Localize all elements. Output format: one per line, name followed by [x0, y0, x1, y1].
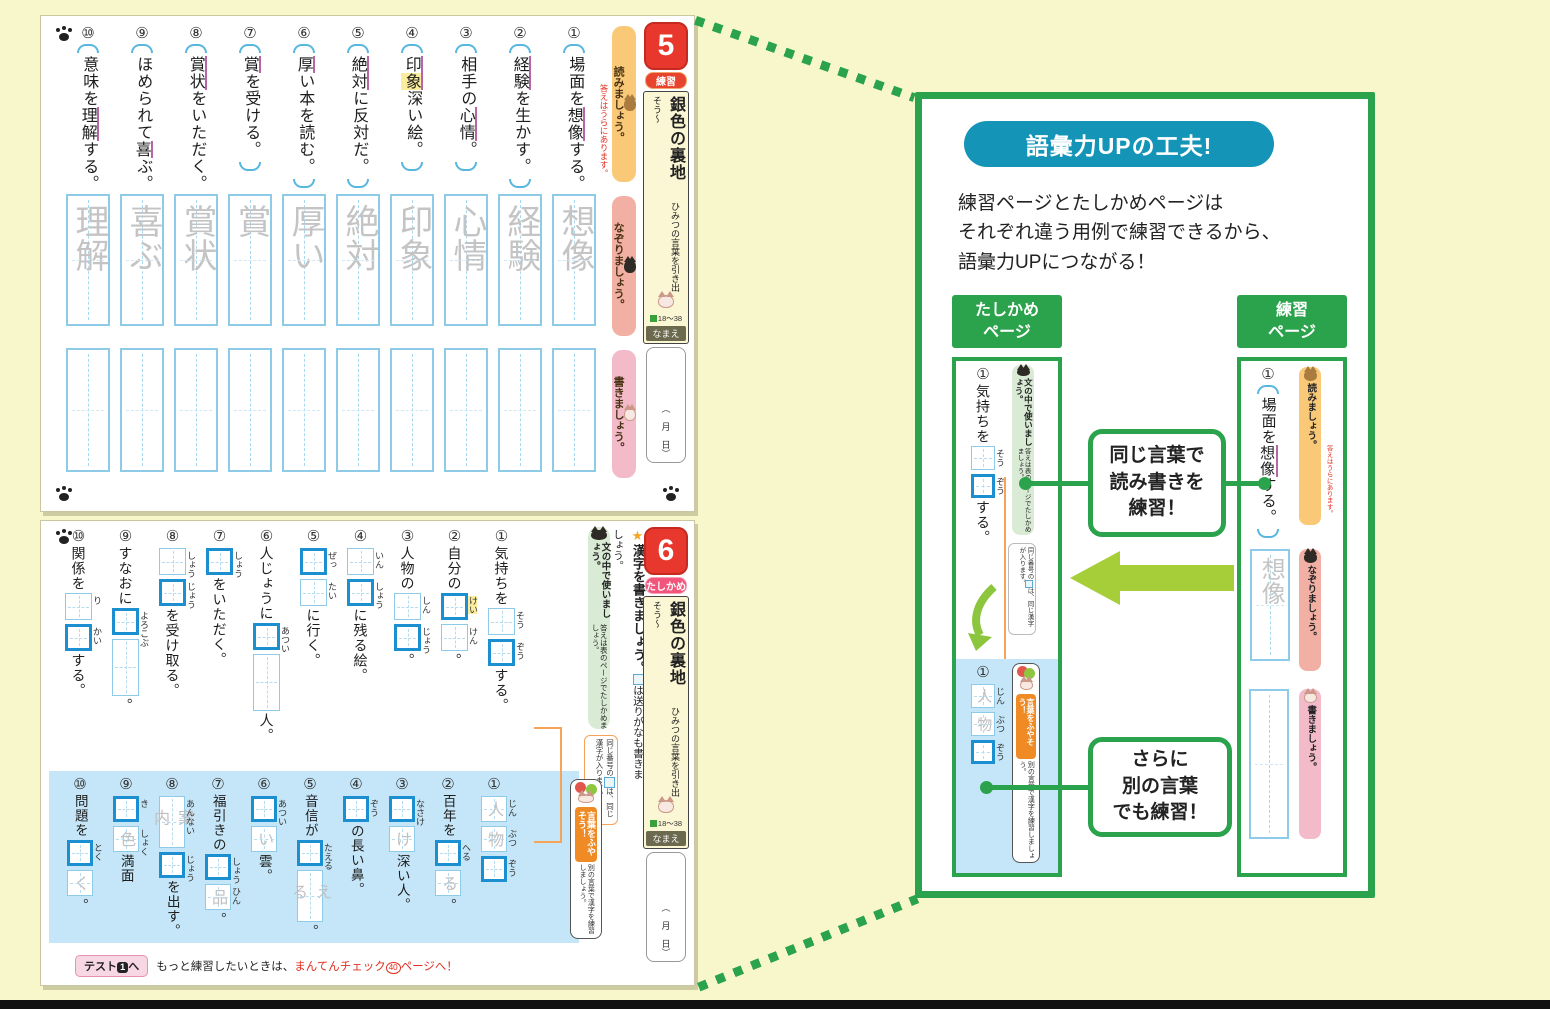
box-wrap: じょう	[394, 624, 421, 651]
write-column	[277, 348, 331, 472]
writing-box[interactable]	[441, 593, 468, 620]
connector-dot	[980, 781, 993, 794]
trace-strip: なぞりましょう。	[612, 196, 636, 336]
writing-box[interactable]	[394, 624, 421, 651]
furigana: へる	[461, 843, 470, 861]
write-box-large[interactable]	[444, 348, 488, 472]
arc-mark	[455, 162, 477, 171]
sentence-text: 厚	[293, 56, 314, 73]
trace-column: 印象	[385, 194, 439, 326]
box-wrap: かい	[65, 624, 92, 651]
p5-trace-band: 想像経験心情印象絶対厚い賞賞状喜ぶ理解	[53, 194, 601, 326]
trace-box[interactable]: い	[251, 826, 277, 852]
p5-title-column: 5 練習 銀色の裏地 ひみつの言葉を引き出そう～ 18～38 なまえ （ 月 日…	[642, 22, 690, 463]
trace-box[interactable]: け	[389, 826, 415, 852]
name-field[interactable]: （ 月 日）	[646, 852, 686, 962]
vocab-strip: 言葉をふやそう！ 別の言葉で漢字を練習しましょう。	[570, 779, 602, 939]
trace-box-large[interactable]: 印象	[390, 194, 434, 326]
furigana: かい	[92, 627, 101, 645]
sentence-text: に行く。	[305, 608, 321, 668]
writing-box[interactable]	[347, 548, 374, 575]
big-arrow-body	[1118, 565, 1234, 591]
trace-box[interactable]: 案内	[159, 796, 185, 848]
p6-bottom-columns: ①人じん物ぶつぞう②百年をへるる。③なさけけ深い人。④ぞうの長い鼻。⑤音信がたえ…	[57, 777, 517, 938]
item-number: ②	[448, 529, 461, 544]
worksheet-column: ⑤ぜったいに行く。	[290, 529, 337, 743]
worksheet-column: ⑦賞を受ける。	[223, 26, 277, 205]
trace-box-large[interactable]: 賞	[228, 194, 272, 326]
write-column	[61, 348, 115, 472]
trace-characters: 心情	[443, 204, 489, 272]
box-wrap: そう	[971, 446, 995, 470]
writing-box[interactable]	[253, 654, 280, 711]
sentence-text: 気持ちを	[975, 384, 991, 444]
trace-characters: 印象	[389, 204, 435, 272]
furigana: ひん	[231, 887, 240, 905]
trace-box[interactable]: 色	[113, 826, 139, 852]
writing-box[interactable]	[65, 624, 92, 651]
p6-footer: テスト1へ もっと練習したいときは、 まんてんチェック40ページへ！	[75, 955, 458, 977]
mini-same-number-note: 同じ番号のは、同じ漢字が入ります。	[1008, 543, 1036, 635]
worksheet-column: ④ぞうの長い鼻。	[333, 777, 379, 938]
arc-mark	[509, 44, 531, 53]
furigana: じょう	[185, 855, 194, 882]
box-wrap: る	[435, 870, 461, 896]
item-number: ⑨	[119, 777, 132, 792]
write-box-large[interactable]	[498, 348, 542, 472]
trace-box[interactable]: 物	[481, 826, 507, 852]
worksheet-column: ⑥人じょうにあつい人。	[243, 529, 290, 743]
worksheet-column: ⑤絶対に反対だ。	[331, 26, 385, 205]
worksheet-column: ④印象深い絵。	[385, 26, 439, 205]
p6-top-columns: ①気持ちをそうぞうする。②自分のけいけん。③人物のしんじょう。④いんしょうに残る…	[55, 529, 525, 743]
furigana: しょう	[233, 551, 242, 578]
box-wrap: じょう	[159, 579, 186, 606]
sentence-text: 意味を	[79, 56, 97, 107]
box-wrap: ぜっ	[300, 548, 327, 575]
box-wrap	[112, 639, 139, 696]
sentence-text: 音信が	[302, 794, 318, 838]
page-number-badge: 5	[644, 22, 688, 70]
write-column	[439, 348, 493, 472]
trace-box-large[interactable]: 喜ぶ	[120, 194, 164, 326]
writing-box[interactable]	[206, 548, 233, 575]
box-wrap: ぞう	[343, 796, 369, 822]
writing-box[interactable]	[205, 854, 231, 880]
furigana: しょう	[374, 582, 383, 609]
box-wrap: 人じん	[481, 796, 507, 822]
sentence-text: をいただく。	[187, 90, 205, 192]
mini-write-strip: 書きましょう。	[1299, 689, 1321, 839]
same-word-connector-line	[534, 841, 562, 843]
furigana: ぞう	[995, 743, 1004, 761]
arc-mark	[1257, 529, 1279, 538]
worksheet-column: ⑩関係をりかいする。	[55, 529, 102, 743]
furigana: じょう	[186, 582, 195, 609]
writing-box[interactable]	[343, 796, 369, 822]
trace-characters: 賞状	[173, 204, 219, 272]
writing-box[interactable]	[65, 593, 92, 620]
date-field[interactable]: （ 月 日）	[660, 903, 673, 957]
sentence-text: 百年を	[440, 794, 456, 838]
writing-box[interactable]	[251, 796, 277, 822]
furigana: たえる	[323, 843, 332, 870]
worksheet-column: ⑩問題をとくく。	[57, 777, 103, 938]
item-number: ⑤	[351, 26, 364, 41]
use-in-sentence-strip: 文の中で使いましょう。 答えは表のページでたしかめましょう。	[588, 527, 610, 729]
writing-box[interactable]	[297, 840, 323, 866]
writing-box[interactable]	[159, 548, 186, 575]
writing-box[interactable]	[389, 796, 415, 822]
tashikame-mini-page: ①気持ちをそうぞうする。 文の中で使いましょう。 答えは表のページでたしかめまし…	[952, 357, 1062, 877]
arc-mark	[239, 44, 261, 53]
furigana: あつい	[280, 626, 289, 653]
worksheet-column: ⑧しょうじょうを受け取る。	[149, 529, 196, 743]
writing-box[interactable]	[112, 639, 139, 696]
vocab-badge: 言葉をふやそう！	[1016, 694, 1036, 760]
trace-box-large[interactable]: 想像	[1250, 549, 1290, 661]
write-box-large[interactable]	[120, 348, 164, 472]
big-arrow-icon	[1070, 551, 1120, 605]
white-cat-icon	[1304, 692, 1317, 703]
sentence-text: の長い鼻。	[348, 824, 364, 897]
trace-character: る	[436, 874, 460, 890]
cat-icon	[658, 800, 674, 813]
arc-mark	[401, 162, 423, 171]
trace-column: 絶対	[331, 194, 385, 326]
write-box-large[interactable]	[282, 348, 326, 472]
sentence-text: 福引きの	[210, 794, 226, 852]
sentence-text: 問題を	[72, 794, 88, 838]
item-number: ①	[487, 777, 500, 792]
dotted-connector-bottom	[697, 895, 919, 992]
arc-mark	[347, 179, 369, 188]
trace-characters: 絶対	[335, 204, 381, 272]
box-wrap: い	[251, 826, 277, 852]
box-wrap: あつい	[253, 623, 280, 650]
writing-box[interactable]	[488, 608, 515, 635]
furigana: じん	[507, 799, 516, 817]
sentence-text: に残る絵。	[352, 608, 368, 683]
furigana: ぞう	[995, 477, 1004, 495]
trace-box[interactable]: 品	[205, 884, 231, 910]
box-wrap	[253, 654, 280, 711]
write-column	[223, 348, 277, 472]
sentence-text: 関係を	[70, 546, 86, 591]
worksheet-column: ③相手の心情。	[439, 26, 493, 205]
mini-left-item: ①気持ちをそうぞうする。	[960, 367, 1006, 545]
item-number: ⑦	[211, 777, 224, 792]
worksheet-page-5: ①場面を想像する。②経験を生かす。③相手の心情。④印象深い絵。⑤絶対に反対だ。⑥…	[40, 15, 695, 512]
worksheet-column: ④いんしょうに残る絵。	[337, 529, 384, 743]
read-label: 読みましょう。	[612, 66, 624, 143]
item-number: ①	[976, 665, 989, 680]
kanji-box-icon	[604, 777, 615, 788]
trace-box-large[interactable]: 絶対	[336, 194, 380, 326]
trace-character: える	[286, 883, 334, 908]
test-number: 1	[117, 962, 128, 973]
writing-box[interactable]	[435, 840, 461, 866]
worksheet-column: ②百年をへるる。	[425, 777, 471, 938]
item-number: ③	[459, 26, 472, 41]
writing-box[interactable]	[159, 852, 185, 878]
trace-box-large[interactable]: 厚い	[282, 194, 326, 326]
writing-box[interactable]	[300, 548, 327, 575]
trace-box-large[interactable]: 理解	[66, 194, 110, 326]
write-box-large[interactable]	[66, 348, 110, 472]
trace-column: 経験	[493, 194, 547, 326]
trace-box[interactable]: る	[435, 870, 461, 896]
mini-trace-strip: なぞりましょう。	[1299, 549, 1321, 671]
item-number: ⑩	[81, 26, 94, 41]
writing-box[interactable]	[159, 579, 186, 606]
box-wrap: 色しょく	[113, 826, 139, 852]
box-wrap: しょう	[347, 579, 374, 606]
writing-box[interactable]	[971, 740, 995, 764]
connector-line	[988, 785, 1088, 790]
trace-box-large[interactable]: 想像	[552, 194, 596, 326]
box-wrap: そう	[488, 608, 515, 635]
sentence-text: 理解	[77, 107, 98, 141]
kanji-box-icon	[1025, 580, 1033, 588]
writing-box[interactable]	[300, 579, 327, 606]
cat-icon	[1304, 370, 1317, 381]
furigana: なさけ	[415, 799, 424, 826]
sentence-text: 。	[446, 653, 462, 668]
white-cat-icon	[624, 408, 636, 421]
sentence-text: 相手の	[457, 56, 475, 107]
worksheet-column: ①場面を想像する。	[547, 26, 601, 205]
box-wrap: しょう	[159, 548, 186, 575]
sentence-text: を出す。	[164, 880, 180, 938]
black-cat-icon	[1304, 552, 1317, 563]
trace-box-large[interactable]: 賞状	[174, 194, 218, 326]
title-text: 銀色の裏地	[667, 96, 684, 181]
trace-column: 心情	[439, 194, 493, 326]
sentence-text: 人じょうに	[258, 546, 274, 621]
sentence-text: を受け取る。	[164, 608, 180, 698]
writing-box[interactable]	[971, 446, 995, 470]
trace-box[interactable]: 人	[481, 796, 507, 822]
worksheet-column: ⑩意味を理解する。	[61, 26, 115, 205]
item-number: ⑥	[297, 26, 310, 41]
connector-dot	[1258, 477, 1271, 490]
trace-label: なぞりましょう。	[1305, 565, 1315, 641]
check-badge: たしかめ	[645, 577, 687, 594]
trace-column: 想像	[547, 194, 601, 326]
sentence-text: をいただく。	[211, 577, 227, 667]
furigana: じん	[995, 687, 1004, 705]
footer-link-red[interactable]: まんてんチェック40ページへ！	[294, 958, 458, 974]
trace-box-large[interactable]: 経験	[498, 194, 542, 326]
trace-box-large[interactable]: 心情	[444, 194, 488, 326]
trace-character: い	[252, 831, 276, 847]
note-text-1: 同じ番号の	[606, 739, 615, 777]
box-wrap: ぞう	[481, 856, 507, 882]
sentence-text: 。	[210, 912, 226, 927]
item-number: ④	[354, 529, 367, 544]
arc-mark	[455, 44, 477, 53]
worksheet-column: ⑤音信がたえるえる。	[287, 777, 333, 938]
item-number: ⑧	[166, 529, 179, 544]
furigana: たい	[327, 582, 336, 600]
arc-mark	[293, 44, 315, 53]
box-wrap: 物ぶつ	[971, 712, 995, 736]
practice-badge: 練習	[645, 72, 687, 89]
worksheet-column: ①人じん物ぶつぞう	[471, 777, 517, 938]
cat-icon	[624, 98, 636, 111]
vocab-badge: 言葉をふやそう！	[575, 807, 597, 862]
trace-characters: 賞	[227, 204, 273, 238]
item-number: ⑦	[243, 26, 256, 41]
trace-column: 厚い	[277, 194, 331, 326]
trace-characters: 経験	[497, 204, 543, 272]
worksheet-column: ⑨き色しょく満面	[103, 777, 149, 938]
vocab-note: 別の言葉で漢字を練習しましょう。	[1018, 761, 1035, 862]
item-number: ⑤	[303, 777, 316, 792]
trace-character: 人	[482, 801, 506, 817]
box-wrap: き	[113, 796, 139, 822]
same-word-connector-line	[534, 727, 562, 729]
write-box-large[interactable]	[552, 348, 596, 472]
p5-write-band	[53, 348, 601, 472]
worksheet-column: ①気持ちをそうぞうする。	[960, 367, 1006, 545]
trace-characters: 想像	[551, 204, 597, 272]
cat-icon	[1020, 680, 1033, 690]
title-panel: 銀色の裏地 ひみつの言葉を引き出そう～ 18～38 なまえ	[643, 596, 689, 849]
trace-character: 物	[482, 831, 506, 847]
trace-character: 物	[972, 717, 994, 732]
furigana: そう	[995, 449, 1004, 467]
item-number: ①	[1261, 367, 1274, 382]
trace-box[interactable]: 人	[971, 684, 995, 708]
writing-box[interactable]	[67, 840, 93, 866]
write-column	[493, 348, 547, 472]
sentence-text: ほめられて	[133, 56, 151, 141]
writing-box[interactable]	[394, 593, 421, 620]
sentence-text: 自分の	[446, 546, 462, 591]
panel-lead-text: 練習ページとたしかめページは それぞれ違う用例で練習できるから、 語彙力UPにつ…	[958, 189, 1358, 277]
arc-mark	[239, 162, 261, 171]
item-number: ⑧	[165, 777, 178, 792]
box-wrap: なさけ	[389, 796, 415, 822]
item-number: ⑥	[257, 777, 270, 792]
dog-icon	[658, 295, 674, 308]
sentence-text: 象	[401, 73, 422, 90]
mini-strip-text-1: 文の中で使いましょう。	[1014, 378, 1033, 448]
furigana: けい	[468, 596, 477, 614]
trace-box[interactable]: く	[67, 870, 93, 896]
writing-box[interactable]	[971, 474, 995, 498]
mini-use-strip: 文の中で使いましょう。 答えは表のページでたしかめましょう。	[1012, 365, 1034, 535]
writing-box[interactable]	[253, 623, 280, 650]
unit-title: 銀色の裏地 ひみつの言葉を引き出そう～	[648, 601, 684, 797]
mini-strip-text-2: 答えは表のページでたしかめましょう。	[1016, 448, 1030, 535]
box-wrap: しょう	[205, 854, 231, 880]
write-column	[331, 348, 385, 472]
worksheet-column: ⑦しょうをいただく。	[196, 529, 243, 743]
name-field[interactable]: （ 月 日）	[646, 347, 686, 463]
worksheet-column: ⑦福引きのしょう品ひん。	[195, 777, 241, 938]
trace-box[interactable]: 物	[971, 712, 995, 736]
sentence-text: 心情	[455, 107, 476, 141]
same-word-connector-line	[560, 727, 562, 843]
sentence-text: する。	[565, 141, 583, 192]
writing-box[interactable]	[441, 624, 468, 651]
write-box-large[interactable]	[174, 348, 218, 472]
answer-note: 答えはうらにあります。	[599, 84, 608, 178]
page-number-badge: 6	[644, 527, 688, 575]
sentence-text: 深い絵。	[403, 90, 421, 158]
dotted-connector-top	[694, 16, 916, 102]
sentence-text: い本を読む。	[295, 73, 313, 175]
furigana: じょう	[421, 627, 430, 654]
item-number: ⑩	[72, 529, 85, 544]
trace-characters: 理解	[65, 204, 111, 272]
write-column	[169, 348, 223, 472]
worksheet-column: ①人じん物ぶつぞう	[960, 665, 1006, 766]
writing-box[interactable]	[481, 856, 507, 882]
trace-box[interactable]: える	[297, 870, 323, 922]
write-column	[385, 348, 439, 472]
mini-vocab-strip: 言葉をふやそう！ 別の言葉で漢字を練習しましょう。	[1012, 663, 1040, 863]
panel-title-pill: 語彙力UPの工夫!	[964, 121, 1274, 167]
write-box-large[interactable]	[336, 348, 380, 472]
write-strip: 書きましょう。	[612, 350, 636, 478]
sentence-text: 。	[399, 653, 415, 668]
vocab-blue-section: ①人じん物ぶつぞう②百年をへるる。③なさけけ深い人。④ぞうの長い鼻。⑤音信がたえ…	[49, 771, 579, 943]
mini-left-item2: ①人じん物ぶつぞう	[960, 665, 1006, 766]
item-number: ③	[395, 777, 408, 792]
unit-title: 銀色の裏地 ひみつの言葉を引き出そう～	[648, 96, 684, 292]
writing-box[interactable]	[113, 796, 139, 822]
sentence-text: 想像	[1258, 445, 1278, 477]
footer-text: もっと練習したいときは、	[156, 958, 294, 974]
sentence-text: する。	[975, 500, 991, 545]
test-link-bubble[interactable]: テスト1へ	[75, 955, 148, 977]
box-wrap: ぞう	[971, 740, 995, 764]
write-box-large[interactable]	[390, 348, 434, 472]
title-text: 銀色の裏地	[667, 601, 684, 686]
write-label: 書きましょう。	[612, 376, 624, 453]
furigana: り	[92, 596, 101, 605]
worksheet-column: ③なさけけ深い人。	[379, 777, 425, 938]
trace-column: 賞状	[169, 194, 223, 326]
trace-column: 賞	[223, 194, 277, 326]
box-wrap: たえる	[297, 840, 323, 866]
mini-right-item: ①場面を想像する。	[1245, 367, 1291, 538]
date-field[interactable]: （ 月 日）	[660, 404, 673, 458]
trace-column: 想像	[1247, 549, 1293, 661]
arc-mark	[563, 44, 585, 53]
item-number: ⑧	[189, 26, 202, 41]
arc-mark	[401, 44, 423, 53]
item-number: ③	[401, 529, 414, 544]
answer-note: 答えはうらにあります。	[1325, 445, 1332, 517]
writing-box[interactable]	[488, 639, 515, 666]
write-box-large[interactable]	[1249, 689, 1289, 839]
write-box-large[interactable]	[228, 348, 272, 472]
writing-box[interactable]	[347, 579, 374, 606]
arc-mark	[1257, 385, 1279, 394]
renshu-page-header: 練習 ページ	[1237, 295, 1347, 348]
worksheet-column: ②経験を生かす。	[493, 26, 547, 205]
writing-box[interactable]	[112, 608, 139, 635]
sentence-text: 。	[440, 898, 456, 913]
trace-character: く	[68, 874, 92, 890]
trace-character: け	[390, 831, 414, 847]
sentence-text: を生かす。	[511, 90, 529, 175]
